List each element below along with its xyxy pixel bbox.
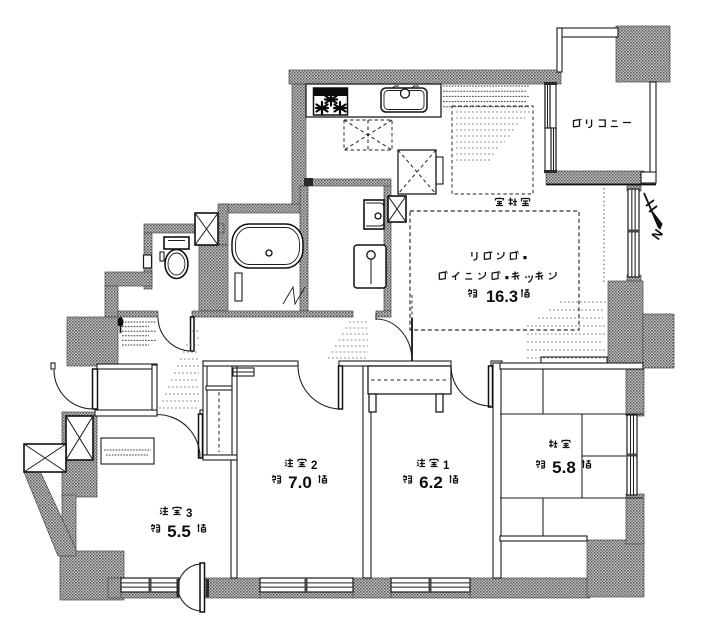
svg-text:6.2: 6.2 [419,473,443,492]
svg-text:3: 3 [186,508,192,520]
svg-text:5.5: 5.5 [167,522,191,541]
svg-text:1: 1 [443,460,450,472]
svg-text:5.8: 5.8 [552,458,576,477]
svg-text:16.3: 16.3 [486,288,518,306]
svg-text:7.0: 7.0 [288,473,312,492]
svg-text:2: 2 [311,460,317,472]
